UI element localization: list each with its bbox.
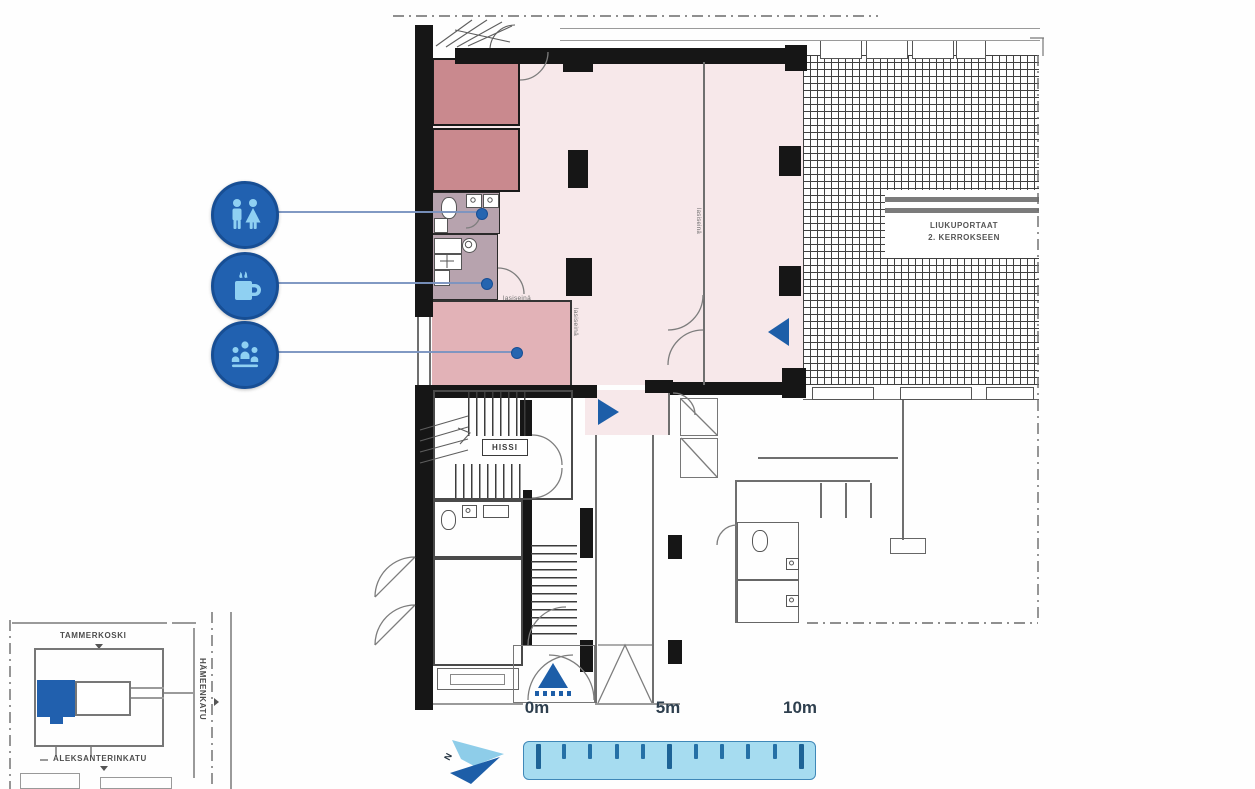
scale-label-5m: 5m xyxy=(648,698,688,718)
map-detail-line xyxy=(131,697,164,699)
meeting-button[interactable] xyxy=(211,321,279,389)
entrance-arrow-up-icon xyxy=(538,663,568,688)
map-building xyxy=(75,681,131,716)
entrance-arrow-right-icon xyxy=(598,399,619,425)
stair-arrow-lines xyxy=(420,416,470,463)
callout-line-coffee xyxy=(273,282,486,284)
map-highlight-tab xyxy=(50,717,63,724)
map-street-line xyxy=(12,622,167,624)
ruler-tick xyxy=(641,744,645,759)
street-arrow-right-icon xyxy=(214,698,219,706)
ruler-tick xyxy=(615,744,619,759)
ramp-lines xyxy=(436,20,515,48)
street-arrow-down-icon xyxy=(100,766,108,771)
ruler-tick xyxy=(773,744,777,759)
ruler-tick-major xyxy=(536,744,541,769)
coffee-button[interactable] xyxy=(211,252,279,320)
entrance-threshold xyxy=(535,691,575,696)
coffee-icon xyxy=(225,266,265,306)
callout-dot-meeting xyxy=(511,347,523,359)
callout-line-restroom xyxy=(273,211,481,213)
ruler-tick xyxy=(720,744,724,759)
ruler-tick xyxy=(694,744,698,759)
map-street-line xyxy=(172,622,196,624)
map-detail-line xyxy=(131,687,164,689)
callout-dot-restroom xyxy=(476,208,488,220)
ruler-tick xyxy=(746,744,750,759)
floorplan-viewer: LIUKUPORTAAT 2. KERROKSEEN xyxy=(0,0,1255,789)
ruler-tick xyxy=(588,744,592,759)
ruler-tick-major xyxy=(799,744,804,769)
north-label: N xyxy=(442,752,454,762)
callout-line-meeting xyxy=(273,351,516,353)
locator-map: TAMMERKOSKI ALEKSANTERINKATU HÄMEENKATU xyxy=(0,610,245,789)
street-name-right: HÄMEENKATU xyxy=(198,658,207,720)
restroom-button[interactable] xyxy=(211,181,279,249)
map-street-line xyxy=(230,612,232,789)
map-street-line xyxy=(193,628,195,778)
map-highlight-building xyxy=(37,680,75,717)
restroom-icon xyxy=(225,195,265,235)
ruler-tick xyxy=(562,744,566,759)
corner-marks xyxy=(1030,38,1044,56)
meeting-icon xyxy=(225,335,265,375)
scale-ruler xyxy=(523,741,816,780)
ruler-tick-major xyxy=(667,744,672,769)
scale-label-0m: 0m xyxy=(517,698,557,718)
entrance-arrow-left-icon xyxy=(768,318,789,346)
map-block xyxy=(100,777,172,789)
street-name-top: TAMMERKOSKI xyxy=(60,631,126,640)
street-name-bottom: ALEKSANTERINKATU xyxy=(53,754,147,763)
north-arrow: N xyxy=(440,726,512,786)
map-block xyxy=(20,773,80,789)
map-detail-line xyxy=(164,692,193,694)
callout-dot-coffee xyxy=(481,278,493,290)
door-arcs xyxy=(375,52,737,703)
north-arrow-icon: N xyxy=(440,726,512,786)
map-dash xyxy=(40,759,48,761)
scale-label-10m: 10m xyxy=(778,698,822,718)
